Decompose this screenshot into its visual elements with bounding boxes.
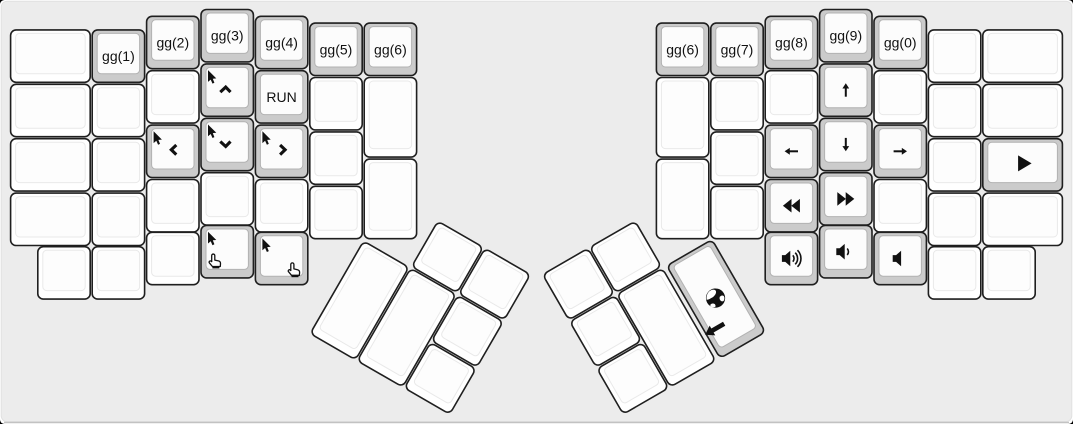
svg-text:gg(4): gg(4) <box>265 35 298 51</box>
svg-text:gg(6): gg(6) <box>666 41 699 57</box>
svg-text:gg(0): gg(0) <box>884 35 917 51</box>
svg-text:gg(8): gg(8) <box>775 35 808 51</box>
svg-text:gg(7): gg(7) <box>721 41 754 57</box>
svg-text:gg(3): gg(3) <box>211 28 244 44</box>
svg-text:gg(2): gg(2) <box>156 35 189 51</box>
svg-text:gg(5): gg(5) <box>320 41 353 57</box>
svg-text:gg(6): gg(6) <box>374 41 407 57</box>
svg-text:gg(1): gg(1) <box>102 48 135 64</box>
svg-text:RUN: RUN <box>266 89 296 105</box>
svg-text:gg(9): gg(9) <box>829 28 862 44</box>
